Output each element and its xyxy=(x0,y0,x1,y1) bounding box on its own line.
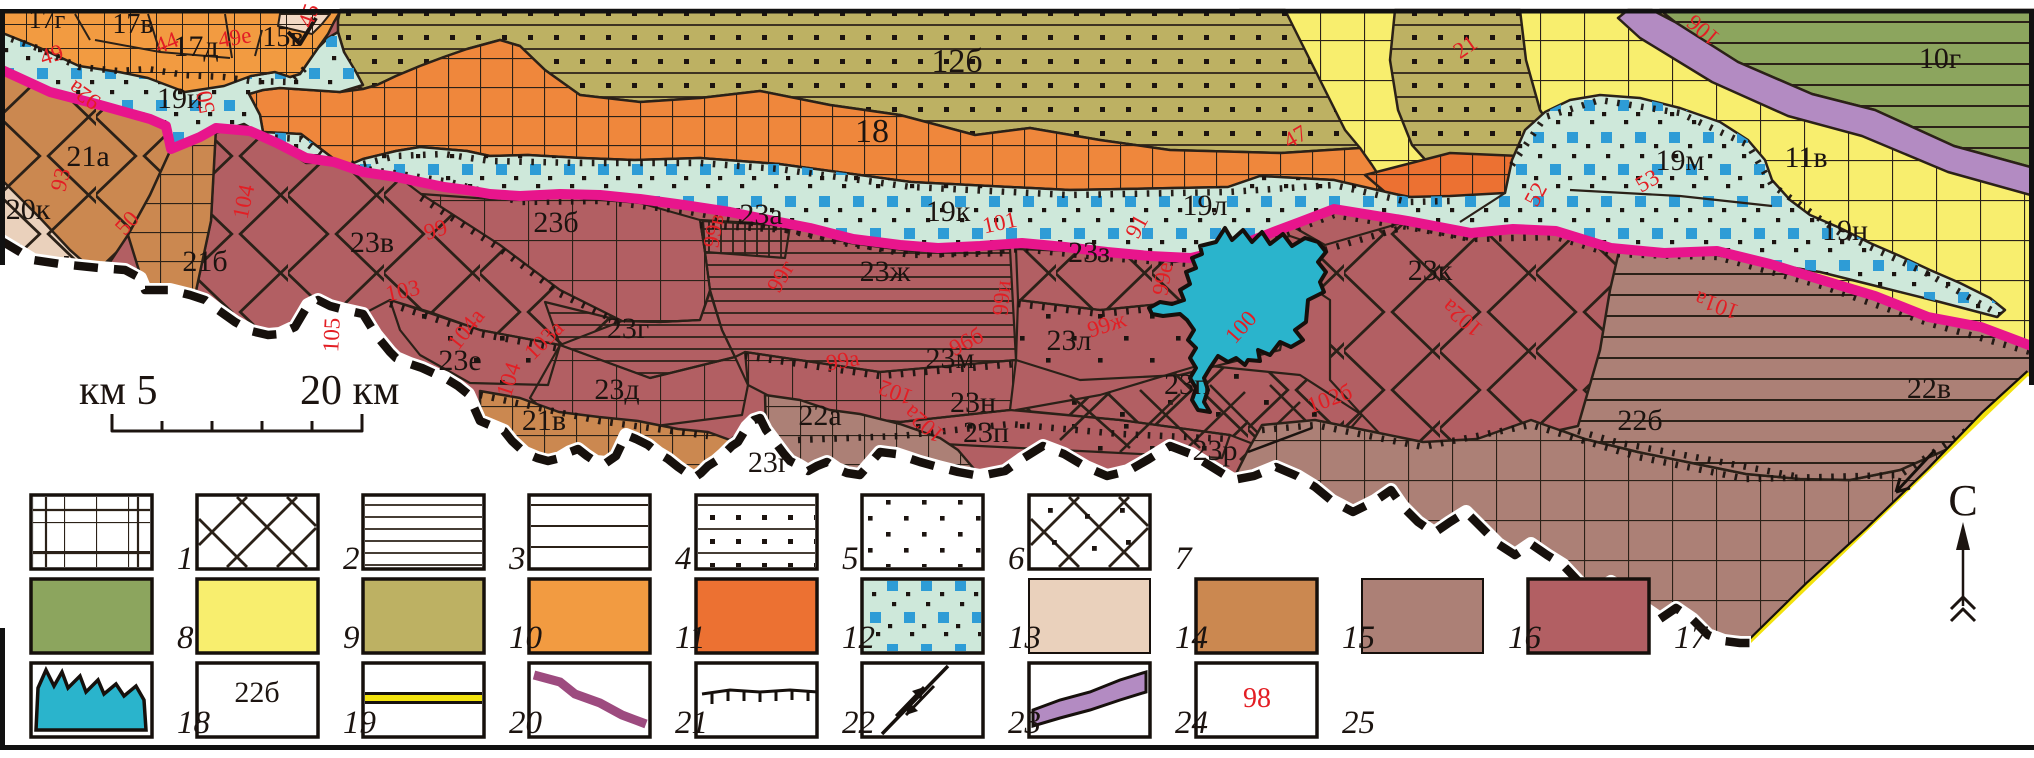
svg-text:23к: 23к xyxy=(1408,254,1453,287)
svg-text:15в: 15в xyxy=(262,22,303,53)
svg-text:17: 17 xyxy=(1674,620,1709,656)
svg-text:4: 4 xyxy=(675,541,692,577)
svg-text:12: 12 xyxy=(842,620,875,656)
svg-text:21: 21 xyxy=(675,705,708,741)
svg-text:11в: 11в xyxy=(1784,141,1827,174)
svg-text:3: 3 xyxy=(508,541,526,577)
svg-text:13: 13 xyxy=(1008,620,1041,656)
svg-text:23: 23 xyxy=(1008,705,1041,741)
svg-text:23н: 23н xyxy=(950,386,996,419)
svg-text:19н: 19н xyxy=(1822,214,1868,247)
svg-text:10: 10 xyxy=(509,620,543,656)
svg-text:20к: 20к xyxy=(6,193,51,226)
svg-text:23г: 23г xyxy=(607,312,649,345)
svg-text:23б: 23б xyxy=(533,206,578,239)
svg-text:21б: 21б xyxy=(182,245,227,278)
svg-text:23п: 23п xyxy=(1164,368,1210,401)
svg-text:7: 7 xyxy=(1175,541,1193,577)
svg-text:14: 14 xyxy=(1175,620,1208,656)
svg-text:9: 9 xyxy=(343,620,360,656)
svg-text:5: 5 xyxy=(842,541,859,577)
svg-text:105: 105 xyxy=(318,317,345,353)
svg-text:18: 18 xyxy=(855,113,889,150)
svg-text:23р: 23р xyxy=(1193,434,1238,467)
svg-text:18: 18 xyxy=(177,705,211,741)
svg-text:23з: 23з xyxy=(1068,236,1110,269)
svg-text:21в: 21в xyxy=(522,404,566,437)
svg-text:19: 19 xyxy=(343,705,376,741)
svg-text:19м: 19м xyxy=(1656,144,1705,177)
svg-text:20 км: 20 км xyxy=(300,368,399,414)
svg-text:98: 98 xyxy=(1243,683,1271,714)
svg-text:8: 8 xyxy=(177,620,194,656)
svg-text:22б: 22б xyxy=(234,676,279,709)
svg-text:19л: 19л xyxy=(1183,189,1228,222)
svg-text:15: 15 xyxy=(1342,620,1375,656)
svg-text:11: 11 xyxy=(675,620,706,656)
svg-text:24: 24 xyxy=(1175,705,1208,741)
svg-text:22б: 22б xyxy=(1617,404,1662,437)
svg-text:2: 2 xyxy=(343,541,360,577)
svg-text:23п: 23п xyxy=(963,416,1009,449)
svg-text:19к: 19к xyxy=(926,195,971,228)
svg-text:23л: 23л xyxy=(1047,324,1092,357)
svg-text:20: 20 xyxy=(509,705,543,741)
svg-text:50: 50 xyxy=(191,89,220,116)
svg-text:23в: 23в xyxy=(350,226,394,259)
svg-text:12б: 12б xyxy=(931,43,982,80)
svg-text:23а: 23а xyxy=(739,198,782,231)
svg-text:17в: 17в xyxy=(112,9,153,40)
svg-text:23ж: 23ж xyxy=(860,255,911,288)
svg-text:25: 25 xyxy=(1342,705,1375,741)
svg-text:6: 6 xyxy=(1008,541,1025,577)
svg-text:км 5: км 5 xyxy=(79,368,157,414)
svg-text:1: 1 xyxy=(177,541,194,577)
svg-text:10г: 10г xyxy=(1919,42,1961,75)
svg-text:С: С xyxy=(1948,476,1977,525)
svg-text:21а: 21а xyxy=(66,140,109,173)
svg-text:16: 16 xyxy=(1508,620,1542,656)
svg-text:23д: 23д xyxy=(594,373,639,406)
svg-text:23г: 23г xyxy=(748,446,790,479)
svg-text:99и: 99и xyxy=(988,279,1016,316)
svg-text:22в: 22в xyxy=(1907,372,1951,405)
svg-text:22: 22 xyxy=(842,705,875,741)
svg-text:22а: 22а xyxy=(798,399,841,432)
